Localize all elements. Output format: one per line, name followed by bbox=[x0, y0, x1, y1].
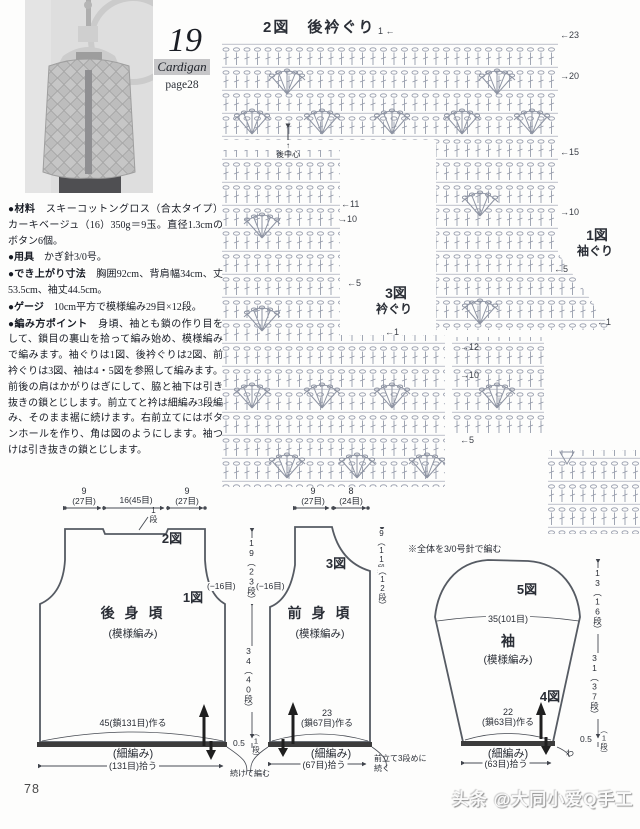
back-top-right-sts: (27目) bbox=[175, 497, 199, 506]
howto-text: 身頃、袖とも鎖の作り目をして、鎖目の裏山を拾って編み始め、模様編みで編みます。袖… bbox=[8, 319, 223, 456]
row-marker-10: →10 bbox=[560, 208, 579, 218]
back-hem-band bbox=[37, 742, 227, 747]
howto-label: ●編み方ポイント bbox=[8, 319, 88, 330]
size-label: ●でき上がり寸法 bbox=[8, 269, 86, 280]
back-pickup: (131目)拾う bbox=[107, 762, 159, 772]
front-cast-on: (鎖67目)作る bbox=[299, 719, 355, 729]
chart1-name: 1図 bbox=[586, 228, 608, 243]
sleeve-dim-lower: 31（37段） bbox=[590, 653, 599, 719]
cardigan-photo-illustration bbox=[25, 0, 153, 193]
sleeve-pickup: (63目)拾う bbox=[482, 760, 529, 770]
front-top-left-sts: (27目) bbox=[301, 497, 325, 506]
page-reference: page28 bbox=[165, 79, 198, 92]
sleeve-cast-on: (鎖63目)作る bbox=[480, 718, 536, 728]
row-marker-23: ←23 bbox=[560, 31, 579, 41]
chart1-sub: 袖ぐり bbox=[577, 245, 613, 258]
materials-paragraph: ●材料 スキーコットングロス（合太タイプ）カーキベージュ（16）350g＝9玉。… bbox=[8, 202, 223, 249]
back-cast-on: 45(鎖131目)作る bbox=[97, 719, 168, 729]
chart-3-front-neckline bbox=[222, 150, 544, 487]
row-marker-l10: →10 bbox=[338, 215, 357, 225]
gauge-paragraph: ●ゲージ 10cm平方で模様編み29目×12段。 bbox=[8, 300, 223, 316]
materials-text: スキーコットングロス（合太タイプ）カーキベージュ（16）350g＝9玉。直径1.… bbox=[8, 204, 223, 247]
front-fig3-ref: 3図 bbox=[326, 557, 346, 571]
row-marker-15: ←15 bbox=[560, 148, 579, 158]
row-marker-l1: ←1 bbox=[385, 328, 399, 338]
back-dim-upper: 19（23段） bbox=[247, 538, 256, 604]
back-fig2-ref: 2図 bbox=[162, 532, 182, 546]
row-marker-k10: →10 bbox=[460, 371, 479, 381]
gauge-label: ●ゲージ bbox=[8, 302, 44, 313]
back-armhole-decrease: (−16目) bbox=[207, 582, 236, 591]
front-dim-neck2: （12段） bbox=[378, 567, 386, 609]
materials-label: ●材料 bbox=[8, 204, 35, 215]
tools-paragraph: ●用具 かぎ針3/0号。 bbox=[8, 250, 223, 266]
row-marker-k12: →12 bbox=[460, 343, 479, 353]
row-marker-l5: ←5 bbox=[347, 279, 361, 289]
back-piece-name: 後 身 頃 bbox=[101, 606, 166, 621]
chart-note: ※全体を3/0号針で編む bbox=[408, 545, 502, 555]
chart-edge-band bbox=[548, 450, 640, 534]
row-marker-l11: ←11 bbox=[341, 200, 359, 210]
design-number: 19 bbox=[168, 22, 202, 59]
back-fig1-ref: 1図 bbox=[183, 591, 203, 605]
sleeve-dim-half: 0.5 bbox=[580, 735, 592, 744]
design-type-badge: Cardigan bbox=[154, 59, 210, 75]
sleeve-dim-upper: 13（16段） bbox=[593, 568, 602, 634]
back-center-label: 後中心 bbox=[276, 151, 300, 160]
front-band-continue: 前立て3段めに続く bbox=[374, 754, 430, 774]
back-continue-note: 続けて編む bbox=[230, 770, 270, 779]
lace-fan-motifs bbox=[234, 69, 550, 478]
tools-label: ●用具 bbox=[8, 252, 34, 263]
back-top-center: 16(45目) bbox=[119, 496, 152, 505]
back-dim-half: 0.5 bbox=[233, 739, 245, 748]
back-top-left-sts: (27目) bbox=[72, 497, 96, 506]
instructions-block: ●材料 スキーコットングロス（合太タイプ）カーキベージュ（16）350g＝9玉。… bbox=[8, 202, 223, 460]
back-neck-one-row: 1段 bbox=[149, 506, 157, 523]
size-paragraph: ●でき上がり寸法 胸囲92cm、背肩幅34cm、丈53.5cm、袖丈44.5cm… bbox=[8, 267, 223, 299]
gauge-text: 10cm平方で模様編み29目×12段。 bbox=[44, 302, 202, 313]
front-stitch-type: (模様編み) bbox=[296, 629, 345, 641]
back-band-stitch: (細編み) bbox=[111, 748, 155, 760]
back-stitch-type: (模様編み) bbox=[109, 629, 158, 641]
chart2-start-marker: 1 ← bbox=[378, 27, 395, 37]
front-top-right-sts: (24目) bbox=[339, 497, 363, 506]
chart-2-back-neckline bbox=[222, 42, 558, 140]
chart3-sub: 衿ぐり bbox=[376, 303, 412, 316]
cardigan-photo bbox=[25, 0, 153, 193]
front-armhole-decrease: (−16目) bbox=[256, 582, 285, 591]
sleeve-fig5-ref: 5図 bbox=[517, 583, 537, 597]
sleeve-dim-half-rows: （1段） bbox=[600, 726, 608, 758]
row-marker-k5: ←5 bbox=[460, 436, 474, 446]
sleeve-piece-name: 袖 bbox=[501, 634, 515, 649]
row-marker-20: →20 bbox=[560, 72, 579, 82]
front-pickup: (67目)拾う bbox=[300, 761, 347, 771]
chart2-title: 2図 後衿ぐり bbox=[263, 20, 375, 37]
tools-text: かぎ針3/0号。 bbox=[34, 252, 107, 263]
back-dim-half-rows: （1段） bbox=[252, 729, 260, 761]
watermark: 头条 @大同小爱Q手工 bbox=[452, 785, 634, 810]
row-marker-5: ←5 bbox=[554, 265, 568, 275]
sleeve-ring-mark: わ bbox=[566, 750, 574, 759]
back-dim-lower: 34（40段） bbox=[244, 646, 253, 712]
sleeve-stitch-type: (模様編み) bbox=[484, 655, 533, 667]
page-number: 78 bbox=[24, 783, 40, 797]
front-hem-band bbox=[268, 742, 372, 747]
pattern-book-page: 19 Cardigan page28 ●材料 スキーコットングロス（合太タイプ）… bbox=[0, 0, 640, 829]
chart3-name: 3図 bbox=[385, 286, 407, 301]
sleeve-hem-band bbox=[461, 741, 555, 746]
design-type-label: Cardigan bbox=[157, 59, 206, 74]
howto-paragraph: ●編み方ポイント 身頃、袖とも鎖の作り目をして、鎖目の裏山を拾って編み始め、模様… bbox=[8, 317, 223, 459]
row-marker-1: ←1 bbox=[597, 318, 611, 328]
sleeve-top-width: 35(101目) bbox=[486, 615, 530, 625]
front-band-stitch: (細編み) bbox=[309, 748, 353, 760]
sleeve-fig4-ref: 4図 bbox=[540, 690, 560, 704]
front-piece-name: 前 身 頃 bbox=[288, 606, 353, 621]
